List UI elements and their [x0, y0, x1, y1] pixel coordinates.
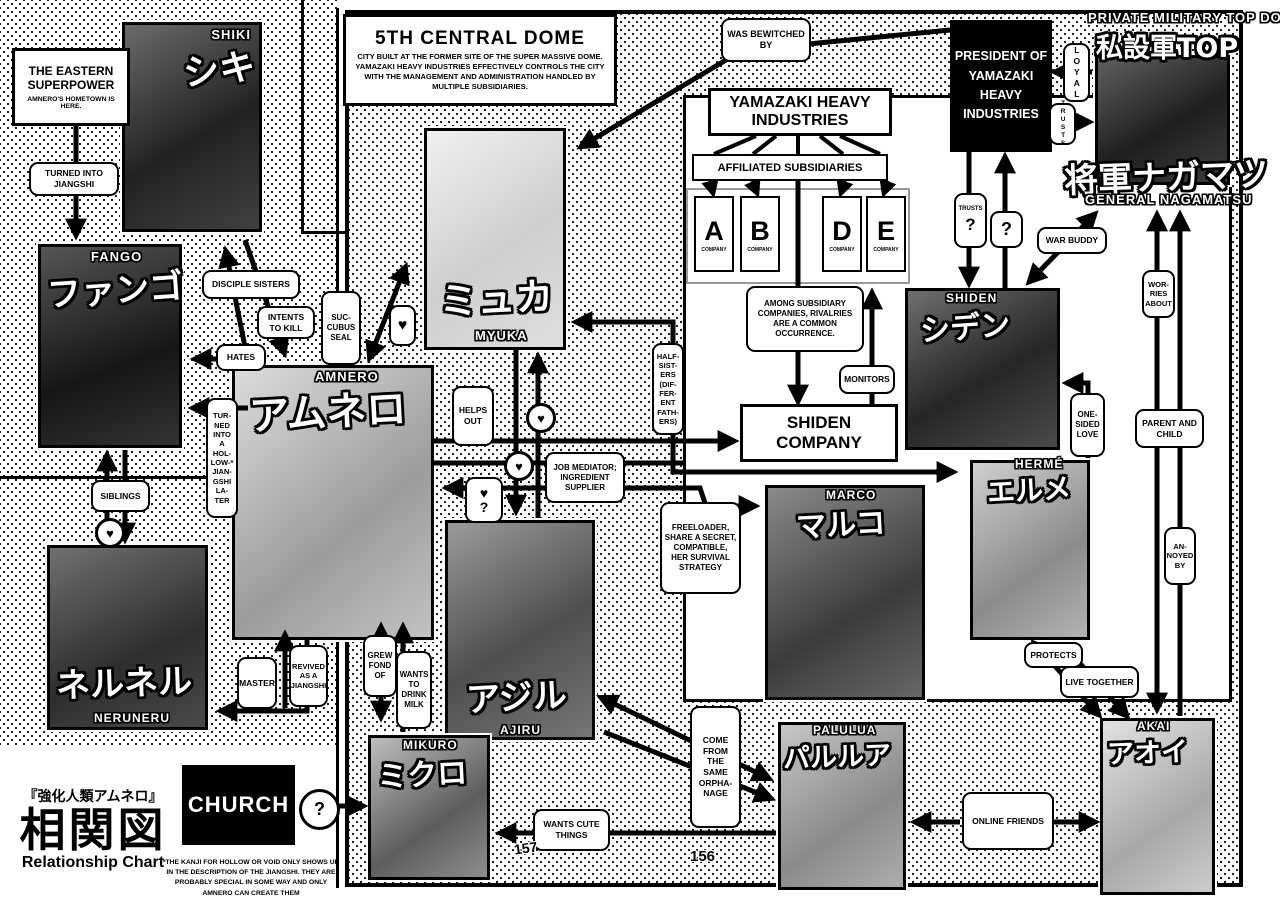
loyal-text: LOYAL — [1071, 45, 1082, 100]
company-d-sub: COMPANY — [829, 247, 854, 253]
company-e-box: E COMPANY — [866, 196, 906, 272]
intents-to-kill-label: INTENTS TO KILL — [257, 306, 315, 339]
half-sisters-label: HALF-SIST-ERS (DIF-FER-ENT FATH-ERS) — [652, 343, 684, 435]
annoyed-by-label: AN-NOYED BY — [1164, 527, 1196, 585]
job-mediator-label: JOB MEDIATOR; INGREDIENT SUPPLIER — [545, 452, 625, 503]
yamazaki-box: YAMAZAKI HEAVY INDUSTRIES — [708, 88, 892, 136]
question-label: ? — [990, 211, 1023, 248]
company-b-box: B COMPANY — [740, 196, 780, 272]
myuka-ajiru-heart-icon: ♥ — [526, 403, 556, 433]
central-dome-body: CITY BUILT AT THE FORMER SITE OF THE SUP… — [352, 52, 608, 93]
footnote: *THE KANJI FOR HOLLOW OR VOID ONLY SHOWS… — [162, 858, 340, 899]
trusts-question-mark: ? — [965, 214, 975, 235]
title-block: 『強化人類アムネロ』 相関図 Relationship Chart — [18, 786, 168, 872]
revived-jiangshi-label: REVIVED AS A JIANGSHI — [289, 645, 328, 707]
online-friends-label: ONLINE FRIENDS — [962, 792, 1054, 850]
loyal-label: LOYAL — [1063, 43, 1090, 102]
eastern-superpower-body: AMNERO'S HOMETOWN IS HERE. — [18, 96, 124, 110]
company-d-box: D COMPANY — [822, 196, 862, 272]
relationship-chart-page: SHIKI シキ FANGO ファンゴ ミュカ MYUKA AMNERO アムネ… — [0, 0, 1280, 904]
parent-child-label: PARENT AND CHILD — [1135, 409, 1204, 448]
company-a-sub: COMPANY — [701, 247, 726, 253]
company-b-letter: B — [750, 216, 770, 247]
company-a-box: A COMPANY — [694, 196, 734, 272]
trusts-label: TRUSTS — [1049, 103, 1076, 145]
company-e-sub: COMPANY — [873, 247, 898, 253]
church-question-icon: ? — [299, 789, 340, 830]
trusts-question-word: TRUSTS — [959, 206, 983, 214]
page-number-right: 156 — [690, 848, 715, 865]
succubus-heart-box: ♥ — [389, 305, 416, 346]
eastern-superpower-title: THE EASTERN SUPERPOWER — [18, 64, 124, 93]
president-box: PRESIDENT OF YAMAZAKI HEAVY INDUSTRIES — [950, 20, 1052, 152]
chart-subtitle: Relationship Chart — [18, 854, 168, 872]
protects-label: PROTECTS — [1024, 642, 1083, 668]
yamazaki-label: YAMAZAKI HEAVY INDUSTRIES — [711, 94, 889, 131]
heart-icon: ♥ — [515, 459, 523, 474]
grew-fond-label: GREW FOND OF — [363, 635, 397, 697]
chart-kanji-title: 相関図 — [18, 806, 168, 854]
heart-icon: ♥ — [106, 526, 114, 541]
heart-icon: ♥ — [480, 486, 488, 500]
war-buddy-label: WAR BUDDY — [1037, 227, 1107, 254]
company-b-sub: COMPANY — [747, 247, 772, 253]
central-dome-title: 5TH CENTRAL DOME — [375, 28, 585, 50]
live-together-label: LIVE TOGETHER — [1060, 666, 1139, 698]
question-mark: ? — [1001, 218, 1012, 241]
master-label: MASTER — [237, 657, 277, 709]
monitors-label: MONITORS — [839, 365, 895, 394]
company-a-letter: A — [704, 216, 724, 247]
worries-about-label: WOR-RIES ABOUT — [1142, 270, 1175, 318]
heart-icon: ♥ — [398, 316, 408, 336]
siblings-label: SIBLINGS — [91, 480, 150, 512]
freeloader-label: FREELOADER, SHARE A SECRET, COMPATIBLE, … — [660, 502, 741, 594]
rivalry-note: AMONG SUBSIDIARY COMPANIES, RIVALRIES AR… — [746, 286, 864, 352]
affiliated-box: AFFILIATED SUBSIDIARIES — [692, 154, 888, 181]
heart-question-box: ♥ ? — [465, 477, 503, 523]
affiliated-label: AFFILIATED SUBSIDIARIES — [718, 162, 863, 174]
church-box: CHURCH — [182, 765, 295, 845]
heart-icon: ♥ — [537, 411, 545, 426]
shiden-company-box: SHIDEN COMPANY — [740, 404, 898, 462]
question-mark: ? — [314, 799, 325, 820]
succubus-seal-label: SUC-CUBUS SEAL — [321, 291, 361, 365]
central-dome-box: 5TH CENTRAL DOME CITY BUILT AT THE FORME… — [343, 14, 617, 106]
eastern-superpower-box: THE EASTERN SUPERPOWER AMNERO'S HOMETOWN… — [12, 48, 130, 126]
one-sided-love-label: ONE-SIDED LOVE — [1070, 393, 1105, 457]
helps-out-label: HELPS OUT — [452, 386, 494, 446]
page-number-left: 157 — [513, 838, 538, 857]
president-label: PRESIDENT OF YAMAZAKI HEAVY INDUSTRIES — [954, 47, 1048, 125]
wants-cute-label: WANTS CUTE THINGS — [533, 809, 610, 851]
trusts-question-label: TRUSTS ? — [954, 193, 987, 248]
church-label: CHURCH — [188, 792, 289, 818]
hollow-later-label: TUR-NED INTO A HOL-LOW-* JIAN-GSHI LA-TE… — [206, 398, 238, 518]
orphanage-label: COME FROM THE SAME ORPHA-NAGE — [690, 706, 741, 828]
company-d-letter: D — [832, 216, 852, 247]
siblings-heart-icon: ♥ — [95, 518, 125, 548]
disciple-sisters-label: DISCIPLE SISTERS — [202, 270, 300, 299]
was-bewitched-label: WAS BEWITCHED BY — [721, 18, 811, 62]
hates-label: HATES — [216, 344, 266, 371]
trusts-text: TRUSTS — [1058, 100, 1066, 148]
drink-milk-label: WANTS TO DRINK MILK — [396, 651, 432, 729]
ajiru-myuka-heart-icon: ♥ — [504, 451, 534, 481]
company-e-letter: E — [877, 216, 895, 247]
shiden-company-label: SHIDEN COMPANY — [743, 413, 895, 454]
question-mark: ? — [480, 500, 489, 514]
turned-jiangshi-label: TURNED INTO JIANGSHI — [29, 162, 119, 196]
